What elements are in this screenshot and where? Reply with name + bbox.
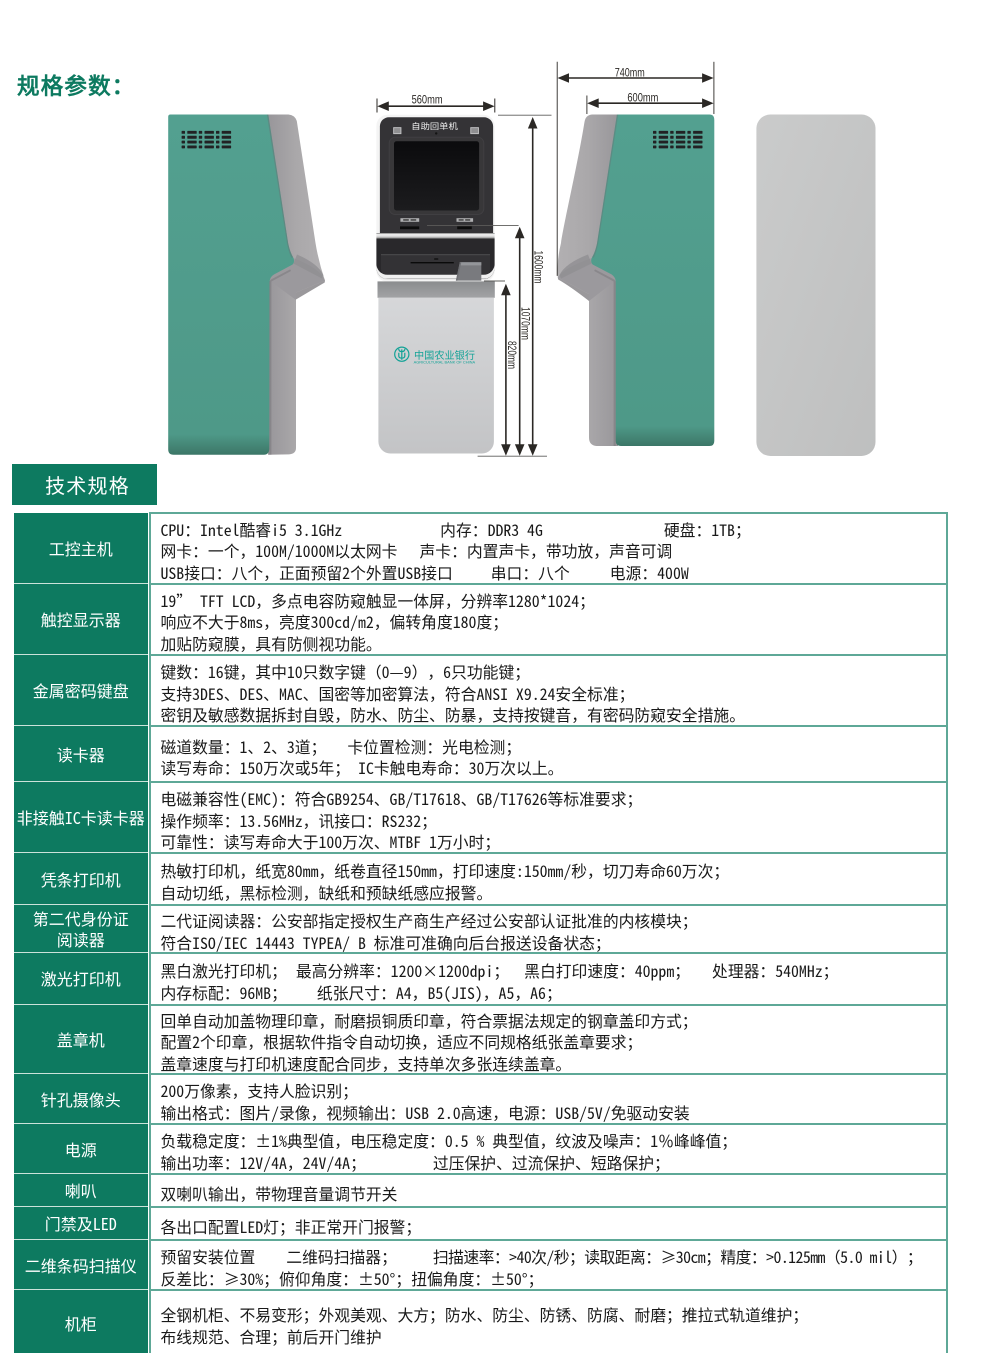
- svg-text:600mm: 600mm: [627, 92, 658, 104]
- svg-text:AGRICULTURAL BANK OF CHINA: AGRICULTURAL BANK OF CHINA: [414, 361, 477, 365]
- svg-text:560mm: 560mm: [412, 94, 443, 106]
- svg-text:1070mm: 1070mm: [519, 307, 531, 340]
- svg-text:自助回单机: 自助回单机: [411, 121, 458, 132]
- svg-text:740mm: 740mm: [615, 67, 645, 79]
- svg-text:820mm: 820mm: [505, 341, 517, 369]
- svg-text:中国农业银行: 中国农业银行: [414, 347, 475, 362]
- svg-text:1600mm: 1600mm: [532, 251, 544, 284]
